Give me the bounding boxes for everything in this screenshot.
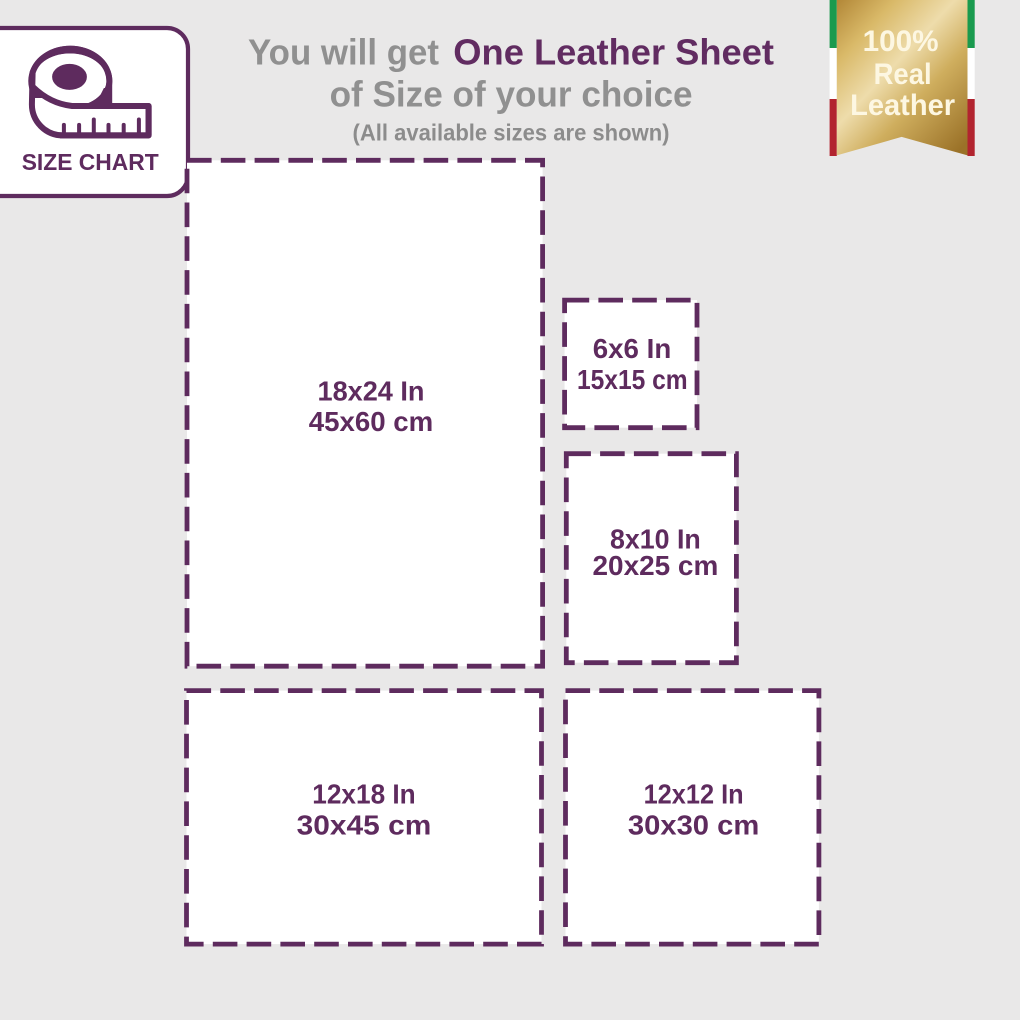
svg-text:6x6 In: 6x6 In [593,333,672,364]
svg-text:30x45 cm: 30x45 cm [297,810,432,841]
svg-text:45x60 cm: 45x60 cm [309,406,434,437]
svg-text:18x24 In: 18x24 In [318,376,425,407]
svg-text:20x25 cm: 20x25 cm [593,550,719,581]
svg-text:100%: 100% [863,25,939,58]
svg-text:Leather: Leather [850,89,955,122]
svg-text:SIZE CHART: SIZE CHART [22,149,159,175]
svg-text:30x30 cm: 30x30 cm [628,810,759,841]
svg-text:12x18 In: 12x18 In [312,778,415,809]
svg-text:You will get: You will get [248,32,439,73]
svg-text:12x12 In: 12x12 In [644,778,744,809]
svg-text:(All available sizes are shown: (All available sizes are shown) [353,120,670,146]
svg-text:One Leather Sheet: One Leather Sheet [453,32,774,73]
svg-text:of Size of your choice: of Size of your choice [330,73,693,114]
svg-text:Real: Real [874,58,932,91]
svg-text:15x15 cm: 15x15 cm [577,364,688,395]
